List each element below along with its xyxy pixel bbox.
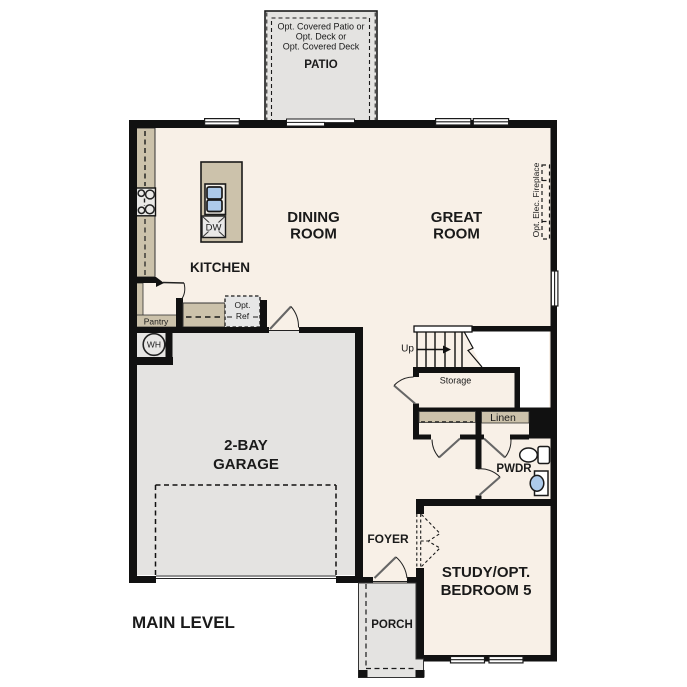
- svg-text:STUDY/OPT.: STUDY/OPT.: [442, 564, 530, 581]
- svg-text:Pantry: Pantry: [144, 317, 169, 327]
- svg-text:Storage: Storage: [440, 376, 472, 386]
- svg-text:Up: Up: [401, 344, 414, 355]
- svg-text:Opt. Deck or: Opt. Deck or: [296, 32, 347, 42]
- svg-text:PORCH: PORCH: [371, 619, 413, 631]
- svg-text:FOYER: FOYER: [367, 532, 409, 546]
- svg-text:Opt. Covered Deck: Opt. Covered Deck: [283, 42, 360, 52]
- svg-text:MAIN LEVEL: MAIN LEVEL: [132, 613, 235, 632]
- svg-text:WH: WH: [147, 340, 161, 350]
- svg-text:ROOM: ROOM: [290, 226, 337, 243]
- svg-text:BEDROOM 5: BEDROOM 5: [441, 582, 532, 599]
- svg-text:DINING: DINING: [287, 209, 340, 226]
- svg-text:KITCHEN: KITCHEN: [190, 260, 250, 275]
- svg-text:PWDR: PWDR: [496, 463, 532, 475]
- svg-text:ROOM: ROOM: [433, 226, 480, 243]
- svg-text:DW: DW: [206, 223, 222, 234]
- svg-text:Opt.: Opt.: [234, 300, 250, 310]
- svg-text:GARAGE: GARAGE: [213, 456, 279, 473]
- svg-text:Opt. Covered Patio or: Opt. Covered Patio or: [277, 22, 364, 32]
- svg-text:GREAT: GREAT: [431, 209, 482, 226]
- svg-text:Opt. Elec. Fireplace: Opt. Elec. Fireplace: [531, 162, 541, 237]
- svg-text:PATIO: PATIO: [304, 59, 337, 71]
- svg-text:2-BAY: 2-BAY: [224, 437, 268, 454]
- svg-text:Ref: Ref: [236, 311, 250, 321]
- svg-text:Linen: Linen: [490, 412, 516, 424]
